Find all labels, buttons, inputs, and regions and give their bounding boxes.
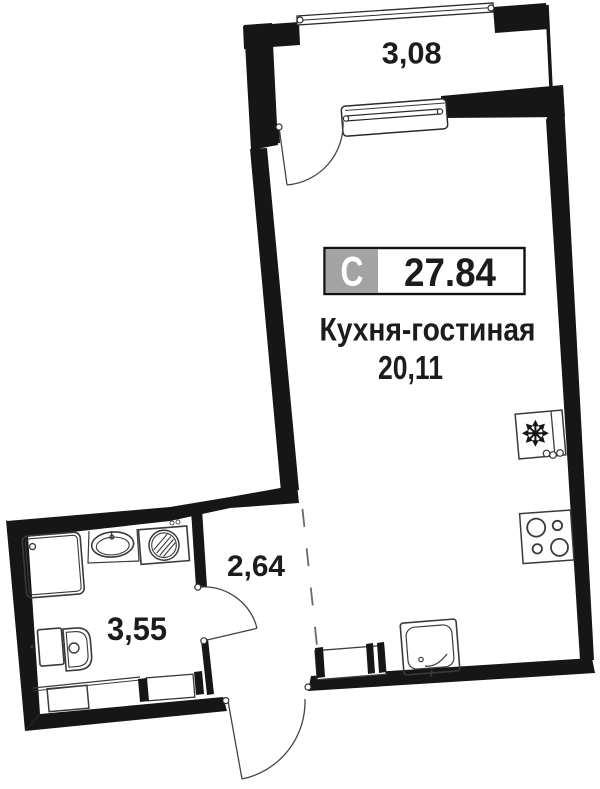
svg-text:3,08: 3,08 bbox=[382, 35, 442, 70]
svg-text:2,64: 2,64 bbox=[227, 550, 285, 583]
svg-text:3,55: 3,55 bbox=[107, 611, 167, 647]
svg-text:Кухня-гостиная: Кухня-гостиная bbox=[320, 312, 536, 348]
svg-text:27.84: 27.84 bbox=[404, 251, 497, 295]
svg-text:20,11: 20,11 bbox=[378, 349, 443, 386]
svg-text:C: C bbox=[341, 248, 364, 295]
